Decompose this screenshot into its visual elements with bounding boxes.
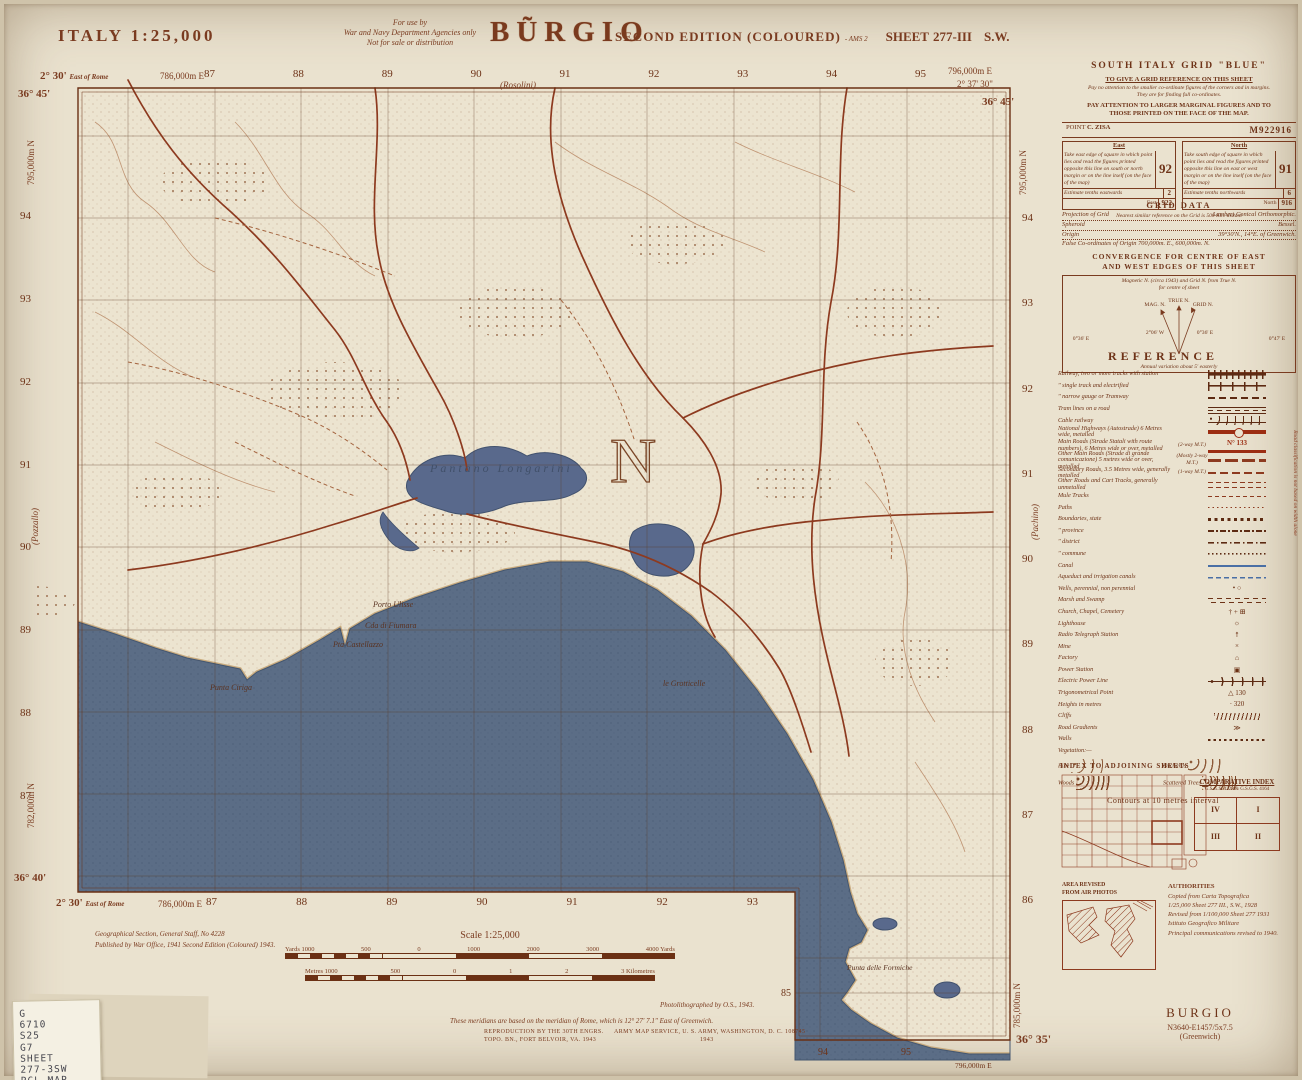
edition-line: SECOND EDITION (COLOURED) - AMS 2 SHEET …	[615, 28, 1010, 46]
sheet-reference-number: N3640-E1457/5x7.5	[1120, 1023, 1280, 1032]
left-northing-bottom: 782,000m N	[26, 783, 36, 828]
grid-num: 92	[657, 896, 668, 908]
wells-symbol: • ○	[1208, 584, 1266, 593]
grid-num: 89	[382, 68, 393, 80]
legend-label: " district	[1058, 539, 1176, 546]
grid-num: 89	[386, 896, 397, 908]
yards-tick: 3000	[586, 946, 599, 953]
legend-label: Mine	[1058, 644, 1176, 651]
church-symbol: † + ⊞	[1208, 608, 1266, 617]
rosolini-road-destination: (Rosolini)	[500, 80, 536, 90]
tram-symbol	[1208, 407, 1266, 414]
legend-row: " district	[1058, 537, 1268, 548]
comparative-title: COMPARATIVE INDEX	[1182, 778, 1292, 787]
lighthouse-symbol: ☼	[1208, 619, 1266, 628]
legend-label: Paths	[1058, 505, 1176, 512]
grid-num: 88	[1022, 724, 1033, 736]
east-value: 92	[1155, 151, 1175, 188]
grid-num: 92	[20, 376, 31, 388]
grid-num: 90	[471, 68, 482, 80]
bottom-easting-left: 786,000m E	[158, 899, 202, 909]
vegetation-spacer	[1208, 747, 1266, 756]
reproduction-note-1: REPRODUCTION BY THE 30TH ENGRS.	[484, 1029, 604, 1035]
top-easting-right: 796,000m E	[948, 66, 992, 76]
grid-heading-2: PAY ATTENTION TO LARGER MARGINAL FIGURES…	[1062, 102, 1296, 111]
magnetic-angle: 2°06' W	[1146, 329, 1165, 336]
convergence-title-1: CONVERGENCE FOR CENTRE OF EAST	[1062, 252, 1296, 262]
grid-num: 89	[20, 624, 31, 636]
point-label: POINT C. ZISA	[1066, 124, 1110, 136]
marsh-symbol	[1208, 596, 1266, 605]
air-photo-revision: AREA REVISED FROM AIR PHOTOS	[1062, 882, 1158, 973]
authorities-line4: Istituto Geografico Militare	[1168, 919, 1302, 928]
top-grid-numbers: 87 88 89 90 91 92 93 94 95	[204, 68, 926, 80]
legend-row: " commune	[1058, 549, 1268, 560]
grid-num: 88	[20, 707, 31, 719]
grid-num: 90	[476, 896, 487, 908]
castellazzo-label: Pta Castellazzo	[332, 640, 383, 649]
legend-row: Cliffs	[1058, 711, 1268, 722]
top-easting-left: 786,000m E	[160, 71, 204, 81]
radio-station-symbol: ↟	[1208, 631, 1266, 640]
origin-value: 39°30'N., 14°E. of Greenwich.	[1218, 231, 1296, 240]
legend-label: Wells, perennial, non perennial	[1058, 586, 1176, 593]
lat-bottom-left: 36° 40'	[14, 872, 46, 884]
legend-row: Other Main Roads (Strade di grande comun…	[1058, 454, 1268, 467]
north-value: 91	[1275, 151, 1295, 188]
road-classification-note: Road classification is not based on widt…	[1292, 430, 1298, 536]
authorities-line3: Revised from 1/100,000 Sheet 277 1931	[1168, 910, 1302, 919]
grid-data-line4: False Co-ordinates of Origin 700,000m. E…	[1062, 240, 1296, 249]
legend-note: (2-way M.T.)	[1176, 442, 1208, 449]
province-boundary-symbol	[1208, 527, 1266, 536]
grid-num: 92	[648, 68, 659, 80]
yards-bar	[285, 953, 675, 959]
yards-tick: 2000	[527, 946, 540, 953]
yards-tick: 1000	[467, 946, 480, 953]
map-sheet-photo: ITALY 1:25,000 For use by War and Navy D…	[0, 0, 1302, 1080]
edition: SECOND EDITION (COLOURED)	[615, 29, 841, 44]
legend-label: " commune	[1058, 551, 1176, 558]
comparative-index: COMPARATIVE INDEX G.S.G.S. 4228 & G.S.G.…	[1182, 778, 1292, 851]
legend-row: Lighthouse☼	[1058, 618, 1268, 629]
grid-num: 87	[1022, 809, 1033, 821]
legend-row: Vegetation:—	[1058, 746, 1268, 757]
canal-symbol	[1208, 561, 1266, 570]
legend-row: Aqueduct and irrigation canals	[1058, 572, 1268, 583]
formiche-label: Punta delle Formiche	[846, 963, 913, 972]
scale-bar-yards: Yards 1000 500 0 1000 2000 3000 4000 Yar…	[285, 946, 675, 959]
grid-num: 94	[20, 210, 31, 222]
reference-title: REFERENCE	[1058, 348, 1268, 364]
state-boundary-symbol	[1208, 515, 1266, 524]
legend-label: Boundaries, state	[1058, 516, 1176, 523]
walls-symbol	[1208, 735, 1266, 744]
metres-tick: 0	[453, 968, 456, 975]
quadrant-iii: III	[1195, 824, 1237, 850]
power-line-symbol	[1208, 677, 1266, 686]
other-main-road-symbol	[1208, 456, 1266, 465]
aqueduct-symbol	[1208, 573, 1266, 582]
east-estimate-label: Estimate tenths eastwards	[1063, 189, 1163, 198]
convergence-caption-2: for centre of sheet	[1063, 285, 1295, 292]
grid-num: 88	[296, 896, 307, 908]
true-north-label: TRUE N.	[1168, 298, 1190, 304]
north-head: North	[1183, 142, 1295, 151]
metres-bar	[305, 975, 655, 981]
lon-value: 2° 30'	[56, 897, 83, 909]
authorities-line1: Copied from Carta Topografica	[1168, 892, 1302, 901]
point-grid-reference: M922916	[1250, 124, 1293, 136]
legend-label: " narrow gauge or Tramway	[1058, 394, 1176, 401]
legend-row: " province	[1058, 526, 1268, 537]
legend-row: Marsh and Swamp	[1058, 595, 1268, 606]
reference-legend: REFERENCE Railway, two or more tracks wi…	[1058, 348, 1268, 806]
metres-tick: Metres 1000	[305, 968, 338, 975]
spheroid-label: Spheroid	[1062, 221, 1085, 230]
index-sheets-title: INDEX TO ADJOINING SHEETS	[1060, 762, 1220, 771]
lat-top-left: 36° 45'	[18, 88, 50, 100]
grid-num: 87	[204, 68, 215, 80]
grid-note-2: They are for finding full co-ordinates.	[1062, 92, 1296, 99]
right-grid-numbers: 94 93 92 91 90 89 88 87 86	[1022, 212, 1033, 906]
grid-num: 93	[747, 896, 758, 908]
trig-point-symbol: △ 130	[1208, 689, 1266, 698]
district-boundary-symbol	[1208, 538, 1266, 547]
legend-label: Heights in metres	[1058, 702, 1176, 709]
grid-num: 91	[1022, 468, 1033, 480]
legend-note: (1-way M.T.)	[1176, 469, 1208, 476]
legend-label: Mule Tracks	[1058, 493, 1176, 500]
grid-num: 86	[1022, 894, 1033, 906]
authorities-note: AUTHORITIES Copied from Carta Topografic…	[1168, 882, 1302, 938]
legend-label: Other Roads and Cart Tracks, generally u…	[1058, 478, 1176, 491]
authorities-title: AUTHORITIES	[1168, 882, 1302, 892]
grid-num: 95	[915, 68, 926, 80]
cart-track-symbol	[1208, 480, 1266, 489]
water-labels: Pantano Longarini	[429, 461, 573, 475]
grid-data-title: GRID DATA	[1062, 200, 1296, 211]
legend-row: Factory⌂	[1058, 653, 1268, 664]
legend-row: Radio Telegraph Station↟	[1058, 630, 1268, 641]
legend-row: Canal	[1058, 561, 1268, 572]
country-scale: ITALY 1:25,000	[58, 26, 216, 46]
legend-row: Walls	[1058, 734, 1268, 745]
railway-single-symbol	[1208, 382, 1266, 391]
lon-value: 2° 30'	[40, 70, 67, 82]
yards-tick: 0	[417, 946, 420, 953]
left-grid-numbers: 94 93 92 91 90 89 88 87	[20, 210, 31, 802]
metres-tick: 3 Kilometres	[621, 968, 655, 975]
lon-note: East of Rome	[69, 73, 108, 81]
gsgs-imprint-2: Published by War Office, 1941 Second Edi…	[95, 941, 275, 949]
legend-row: Church, Chapel, Cemetery† + ⊞	[1058, 607, 1268, 618]
fiumara-label: Cda di Fiumara	[365, 621, 417, 630]
point-word: POINT	[1066, 124, 1085, 131]
edition-suffix: - AMS 2	[845, 35, 868, 43]
grid-data-line3: Origin39°30'N., 14°E. of Greenwich.	[1062, 231, 1296, 241]
right-northing-top: 795,000m N	[1018, 150, 1028, 195]
comparative-subtitle: G.S.G.S. 4228 & G.S.G.S. 4164	[1182, 787, 1292, 794]
quadrant-i: I	[1237, 798, 1279, 824]
east-body: Take east edge of square in which point …	[1063, 151, 1155, 188]
metres-tick: 1	[509, 968, 512, 975]
north-body-row: Take south edge of square in which point…	[1183, 151, 1295, 188]
ext-num-95: 95	[901, 1047, 911, 1058]
comparative-grid: IV I III II	[1194, 797, 1280, 851]
gradient-symbol: ≫	[1208, 724, 1266, 733]
east-edge-angle: 0°47' E	[1269, 335, 1286, 342]
mule-track-symbol	[1208, 492, 1266, 501]
legend-row: National Highways (Autostrade) 6 Metres …	[1058, 427, 1268, 438]
east-body-row: Take east edge of square in which point …	[1063, 151, 1175, 188]
projection-value: Lambert Conical Orthomorphic.	[1213, 211, 1296, 220]
legend-row: Wells, perennial, non perennial• ○	[1058, 584, 1268, 595]
grid-num: 93	[737, 68, 748, 80]
ext-num-94: 94	[818, 1047, 828, 1058]
point-row: POINT C. ZISA M922916	[1062, 122, 1296, 138]
sticker-line: PCL MAP	[21, 1074, 95, 1080]
east-head: East	[1063, 142, 1175, 151]
magnetic-north-label: MAG. N.	[1144, 302, 1166, 308]
legend-label: Church, Chapel, Cemetery	[1058, 609, 1176, 616]
path-symbol	[1208, 503, 1266, 512]
photolitho-note: Photolithographed by O.S., 1943.	[660, 1001, 754, 1009]
air-photo-title-2: FROM AIR PHOTOS	[1062, 890, 1158, 898]
legend-label: Canal	[1058, 563, 1176, 570]
convergence-title-2: AND WEST EDGES OF THIS SHEET	[1062, 262, 1296, 272]
grid-num: 92	[1022, 383, 1033, 395]
grid-num: 88	[293, 68, 304, 80]
quadrant-ii: II	[1237, 824, 1279, 850]
legend-label: " single track and electrified	[1058, 383, 1176, 390]
sheet-datum: (Greenwich)	[1120, 1032, 1280, 1041]
legend-label: Cable railway	[1058, 418, 1176, 425]
lake-label: Pantano Longarini	[429, 461, 573, 475]
power-station-symbol: ▣	[1208, 666, 1266, 675]
legend-row: Trigonometrical Point△ 130	[1058, 688, 1268, 699]
grid-num: 94	[1022, 212, 1033, 224]
ams-imprint-2: 1943	[700, 1037, 714, 1043]
library-call-number-sticker: G 6710 S25 G7 SHEET 277-3SW PCL MAP	[12, 999, 102, 1080]
ciriga-label: Punta Ciriga	[209, 683, 252, 692]
grid-ref-heading: TO GIVE A GRID REFERENCE ON THIS SHEET	[1062, 76, 1296, 85]
legend-label: National Highways (Autostrade) 6 Metres …	[1058, 426, 1176, 439]
legend-label: Vegetation:—	[1058, 748, 1176, 755]
legend-label: Road Gradients	[1058, 725, 1176, 732]
legend-row: Power Station▣	[1058, 665, 1268, 676]
bottom-grid-numbers: 87 88 89 90 91 92 93	[206, 896, 758, 908]
legend-label: Walls	[1058, 736, 1176, 743]
air-photo-diagram	[1062, 900, 1156, 970]
sheet-quadrant: S.W.	[984, 29, 1010, 44]
metres-labels: Metres 1000 500 0 1 2 3 Kilometres	[305, 968, 655, 975]
legend-label: Trigonometrical Point	[1058, 690, 1176, 697]
legend-row: Paths	[1058, 503, 1268, 514]
reproduction-note-2: TOPO. BN., FORT BELVOIR, VA. 1943	[484, 1037, 596, 1043]
spheroid-value: Bessel.	[1278, 221, 1296, 230]
pachino-road-destination: (Pachino)	[1030, 504, 1040, 540]
grid-data-line1: Projection of GridLambert Conical Orthom…	[1062, 211, 1296, 221]
air-photo-title-1: AREA REVISED	[1062, 882, 1158, 890]
railway-symbol	[1208, 370, 1266, 379]
top-left-longitude: 2° 30' East of Rome	[40, 70, 108, 82]
legend-row: Road Gradients≫	[1058, 723, 1268, 734]
gsgs-imprint-1: Geographical Section, General Staff, No …	[95, 930, 225, 938]
grid-letter-n: N	[610, 425, 656, 496]
grid-data-line2: SpheroidBessel.	[1062, 221, 1296, 231]
grid-num: 91	[560, 68, 571, 80]
grid-north-label: GRID N.	[1193, 302, 1214, 308]
top-right-longitude: 2° 37' 30"	[957, 79, 993, 89]
pozzallo-road-destination: (Pozzallo)	[30, 508, 40, 545]
quadrant-iv: IV	[1195, 798, 1237, 824]
commune-boundary-symbol	[1208, 550, 1266, 559]
porto-ulisse-label: Porto Ulisse	[372, 600, 414, 609]
west-edge-angle: 0°36' E	[1073, 335, 1090, 342]
narrow-gauge-symbol	[1208, 393, 1266, 402]
sheet-word: SHEET	[886, 29, 929, 44]
grid-angle: 0°36' E	[1197, 329, 1214, 336]
sheet-name: BURGIO	[1120, 1005, 1280, 1021]
point-name: C. ZISA	[1087, 124, 1110, 131]
legend-label: " province	[1058, 528, 1176, 535]
legend-label: Lighthouse	[1058, 621, 1176, 628]
legend-row: Electric Power Line	[1058, 676, 1268, 687]
ext-grid-85: 85	[781, 988, 791, 999]
legend-label: Factory	[1058, 655, 1176, 662]
grid-num: 87	[206, 896, 217, 908]
grid-reference-panel: SOUTH ITALY GRID "BLUE" TO GIVE A GRID R…	[1062, 60, 1296, 220]
legend-row: Railway, two or more tracks with station	[1058, 369, 1268, 380]
north-estimate-row: Estimate tenths northwards 6	[1183, 188, 1295, 198]
secondary-road-symbol	[1208, 469, 1266, 478]
grid-num: 91	[20, 459, 31, 471]
legend-label: Tram lines on a road	[1058, 406, 1176, 413]
grid-num: 93	[20, 293, 31, 305]
legend-label: Radio Telegraph Station	[1058, 632, 1176, 639]
yards-tick: 4000 Yards	[646, 946, 675, 953]
metres-tick: 500	[390, 968, 400, 975]
right-northing-bottom: 785,000m N	[1012, 983, 1022, 1028]
sheet-number: 277-III	[933, 29, 972, 44]
national-highway-symbol	[1208, 428, 1266, 437]
factory-symbol: ⌂	[1208, 654, 1266, 663]
cliffs-symbol	[1208, 712, 1266, 721]
grid-num: 90	[1022, 553, 1033, 565]
north-estimate-label: Estimate tenths northwards	[1183, 189, 1283, 198]
grid-note-1: Pay no attention to the smaller co-ordin…	[1062, 85, 1296, 92]
lat-bottom-right: 36° 35'	[1016, 1032, 1051, 1047]
grid-num: 91	[567, 896, 578, 908]
meridian-note: These meridians are based on the meridia…	[450, 1017, 713, 1025]
lon-note: East of Rome	[85, 900, 124, 908]
scale-title: Scale 1:25,000	[330, 930, 650, 941]
authorities-line5: Principal communications revised to 1940…	[1168, 929, 1302, 938]
authorities-line2: 1/25,000 Sheet 277 III., S.W., 1928	[1168, 901, 1302, 910]
east-estimate-value: 2	[1163, 189, 1176, 198]
origin-label: Origin	[1062, 231, 1079, 240]
ext-easting: 796,000m E	[955, 1061, 992, 1070]
legend-row: Boundaries, state	[1058, 514, 1268, 525]
map-face: N Pantano Longarini Porto Ulisse Cda di …	[35, 62, 1013, 1072]
grid-num: 89	[1022, 638, 1033, 650]
lat-top-right: 36° 45'	[982, 96, 1014, 108]
north-body: Take south edge of square in which point…	[1183, 151, 1275, 188]
yards-tick: 500	[361, 946, 371, 953]
legend-row: " single track and electrified	[1058, 381, 1268, 392]
legend-row: Heights in metres· 320	[1058, 700, 1268, 711]
legend-label: Aqueduct and irrigation canals	[1058, 574, 1176, 581]
scale-bar-metres: Metres 1000 500 0 1 2 3 Kilometres	[305, 968, 655, 981]
legend-row: Mule Tracks	[1058, 491, 1268, 502]
metres-tick: 2	[565, 968, 568, 975]
grid-num: 93	[1022, 297, 1033, 309]
cable-railway-symbol	[1208, 416, 1266, 425]
projection-label: Projection of Grid	[1062, 211, 1109, 220]
legend-note: (Mostly 2-way M.T.)	[1176, 453, 1208, 468]
grid-data-panel: GRID DATA Projection of GridLambert Coni…	[1062, 200, 1296, 249]
bottom-left-longitude: 2° 30' East of Rome	[56, 897, 124, 909]
legend-label: Marsh and Swamp	[1058, 597, 1176, 604]
yards-labels: Yards 1000 500 0 1000 2000 3000 4000 Yar…	[285, 946, 675, 953]
legend-label: Electric Power Line	[1058, 678, 1176, 685]
grid-panel-title: SOUTH ITALY GRID "BLUE"	[1062, 60, 1296, 73]
legend-label: Power Station	[1058, 667, 1176, 674]
legend-row: Other Roads and Cart Tracks, generally u…	[1058, 479, 1268, 490]
east-estimate-row: Estimate tenths eastwards 2	[1063, 188, 1175, 198]
main-road-symbol: N° 133	[1208, 439, 1266, 453]
legend-row: Mine×	[1058, 642, 1268, 653]
height-symbol: · 320	[1208, 700, 1266, 709]
ams-imprint-1: ARMY MAP SERVICE, U. S. ARMY, WASHINGTON…	[614, 1029, 805, 1035]
mine-symbol: ×	[1208, 642, 1266, 651]
grid-num: 94	[826, 68, 837, 80]
legend-label: Railway, two or more tracks with station	[1058, 371, 1176, 378]
grid-heading-3: THOSE PRINTED ON THE FACE OF THE MAP.	[1062, 110, 1296, 119]
legend-row: Tram lines on a road	[1058, 404, 1268, 415]
grotticelle-label: le Grotticelle	[663, 679, 706, 688]
left-northing-top: 795,000m N	[26, 140, 36, 185]
legend-label: Cliffs	[1058, 713, 1176, 720]
north-estimate-value: 6	[1283, 189, 1296, 198]
legend-row: " narrow gauge or Tramway	[1058, 392, 1268, 403]
sheet-name-block: BURGIO N3640-E1457/5x7.5 (Greenwich)	[1120, 1005, 1280, 1041]
yards-tick: Yards 1000	[285, 946, 315, 953]
